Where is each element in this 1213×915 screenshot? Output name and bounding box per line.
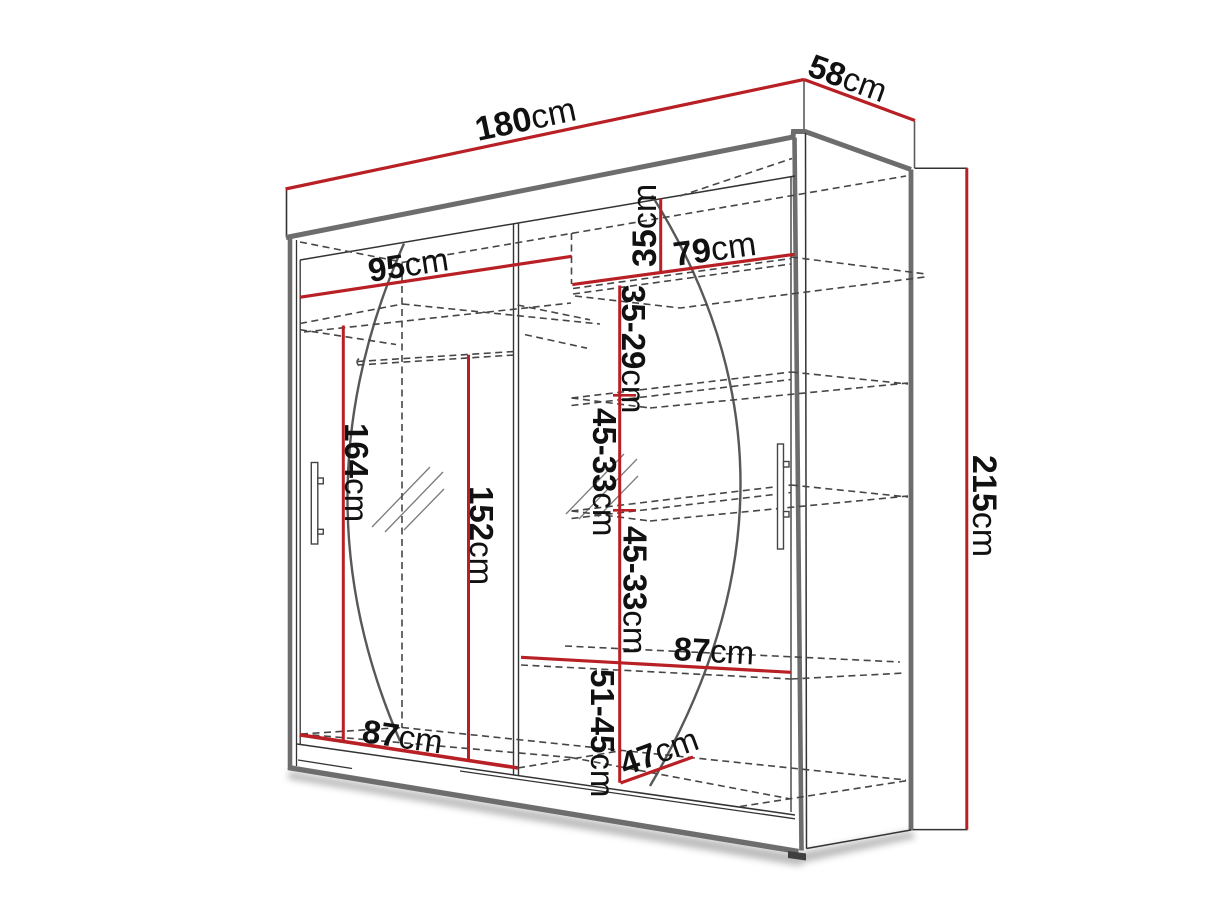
- svg-text:215cm: 215cm: [965, 455, 1003, 557]
- svg-text:87cm: 87cm: [673, 630, 756, 671]
- svg-text:35-29cm: 35-29cm: [615, 285, 652, 413]
- svg-text:45-33cm: 45-33cm: [617, 526, 654, 654]
- svg-text:152cm: 152cm: [463, 486, 500, 585]
- svg-text:51-45cm: 51-45cm: [584, 669, 621, 797]
- svg-text:45-33cm: 45-33cm: [586, 408, 623, 536]
- svg-text:164cm: 164cm: [338, 423, 375, 522]
- svg-text:35cm: 35cm: [626, 184, 664, 267]
